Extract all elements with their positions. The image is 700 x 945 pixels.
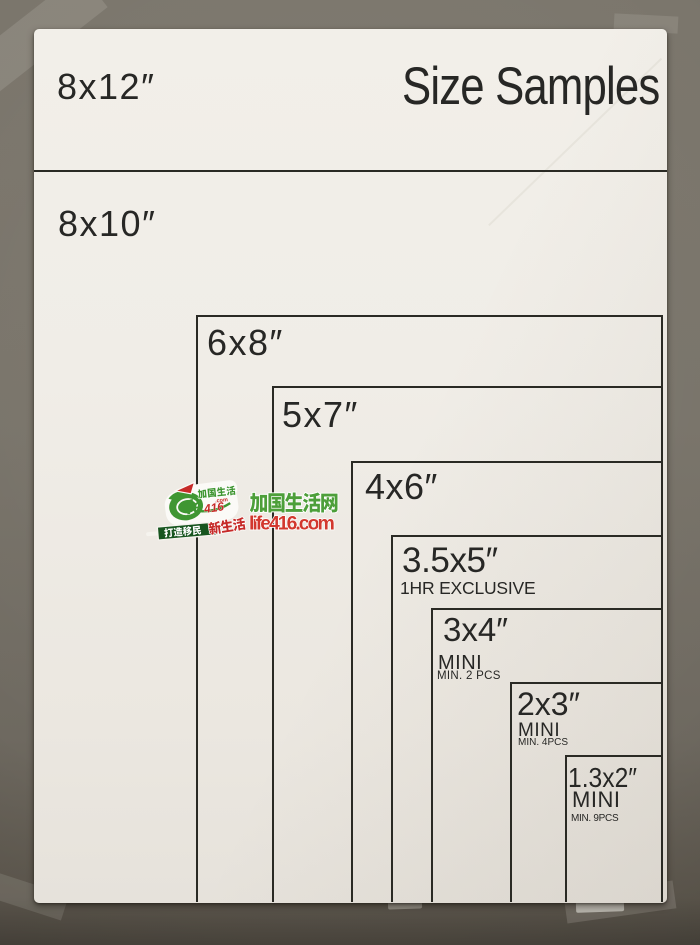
svg-text:life416.com: life416.com xyxy=(249,513,334,535)
svg-text:fe: fe xyxy=(184,495,205,519)
